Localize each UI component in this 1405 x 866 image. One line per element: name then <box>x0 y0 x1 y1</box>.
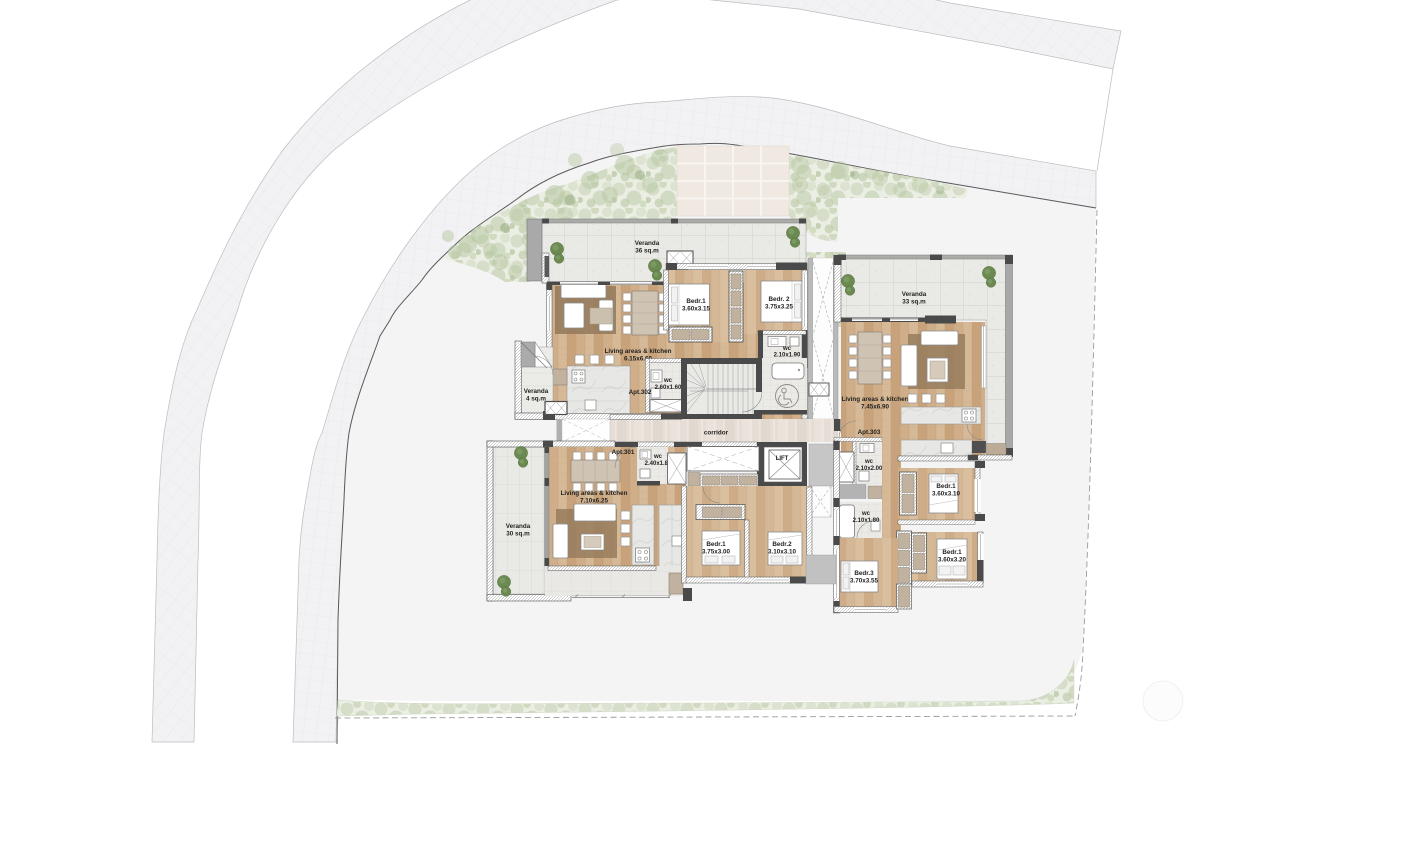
svg-text:Veranda: Veranda <box>506 523 531 530</box>
svg-text:7.45x6.90: 7.45x6.90 <box>861 404 890 411</box>
svg-text:wc: wc <box>864 459 874 465</box>
svg-text:Apt.302: Apt.302 <box>629 389 652 396</box>
svg-text:Apt.301: Apt.301 <box>612 449 635 456</box>
svg-text:33 sq.m: 33 sq.m <box>902 299 926 306</box>
svg-text:wc: wc <box>782 346 792 352</box>
svg-text:Bedr.1: Bedr.1 <box>686 298 706 305</box>
svg-text:2.10x2.00: 2.10x2.00 <box>856 466 883 472</box>
svg-text:3.75x3.00: 3.75x3.00 <box>702 549 731 556</box>
svg-text:Living areas & kitchen: Living areas & kitchen <box>842 396 909 403</box>
svg-text:Bedr.3: Bedr.3 <box>854 570 874 577</box>
svg-text:2.10x1.90: 2.10x1.90 <box>774 353 801 359</box>
svg-text:3.10x3.10: 3.10x3.10 <box>768 549 797 556</box>
svg-text:Bedr.1: Bedr.1 <box>706 541 726 548</box>
svg-text:36 sq.m: 36 sq.m <box>635 248 659 255</box>
svg-text:4 sq.m: 4 sq.m <box>526 396 546 403</box>
svg-text:7.10x6.25: 7.10x6.25 <box>580 498 609 505</box>
svg-text:3.60x3.10: 3.60x3.10 <box>932 491 961 498</box>
svg-text:3.60x3.20: 3.60x3.20 <box>938 557 967 564</box>
svg-text:wc: wc <box>861 511 871 517</box>
svg-text:Living areas & kitchen: Living areas & kitchen <box>561 490 628 497</box>
svg-text:Bedr.1: Bedr.1 <box>942 549 962 556</box>
svg-text:3.70x3.55: 3.70x3.55 <box>850 578 879 585</box>
svg-text:Living areas & kitchen: Living areas & kitchen <box>605 348 672 355</box>
svg-text:Bedr. 2: Bedr. 2 <box>769 296 790 303</box>
svg-text:corridor: corridor <box>704 430 729 437</box>
svg-text:Veranda: Veranda <box>902 291 927 298</box>
svg-text:Apt.303: Apt.303 <box>858 429 881 436</box>
svg-text:3.75x3.25: 3.75x3.25 <box>765 304 794 311</box>
svg-text:3.60x3.15: 3.60x3.15 <box>682 306 711 313</box>
svg-text:Veranda: Veranda <box>635 240 660 247</box>
svg-text:Bedr.1: Bedr.1 <box>936 483 956 490</box>
svg-text:wc: wc <box>653 454 663 460</box>
svg-text:wc: wc <box>663 378 673 384</box>
svg-text:Veranda: Veranda <box>524 388 549 395</box>
svg-text:30 sq.m: 30 sq.m <box>506 531 530 538</box>
svg-text:LIFT: LIFT <box>776 456 789 462</box>
svg-text:Bedr.2: Bedr.2 <box>772 541 792 548</box>
svg-text:2.60x1.60: 2.60x1.60 <box>655 385 682 391</box>
